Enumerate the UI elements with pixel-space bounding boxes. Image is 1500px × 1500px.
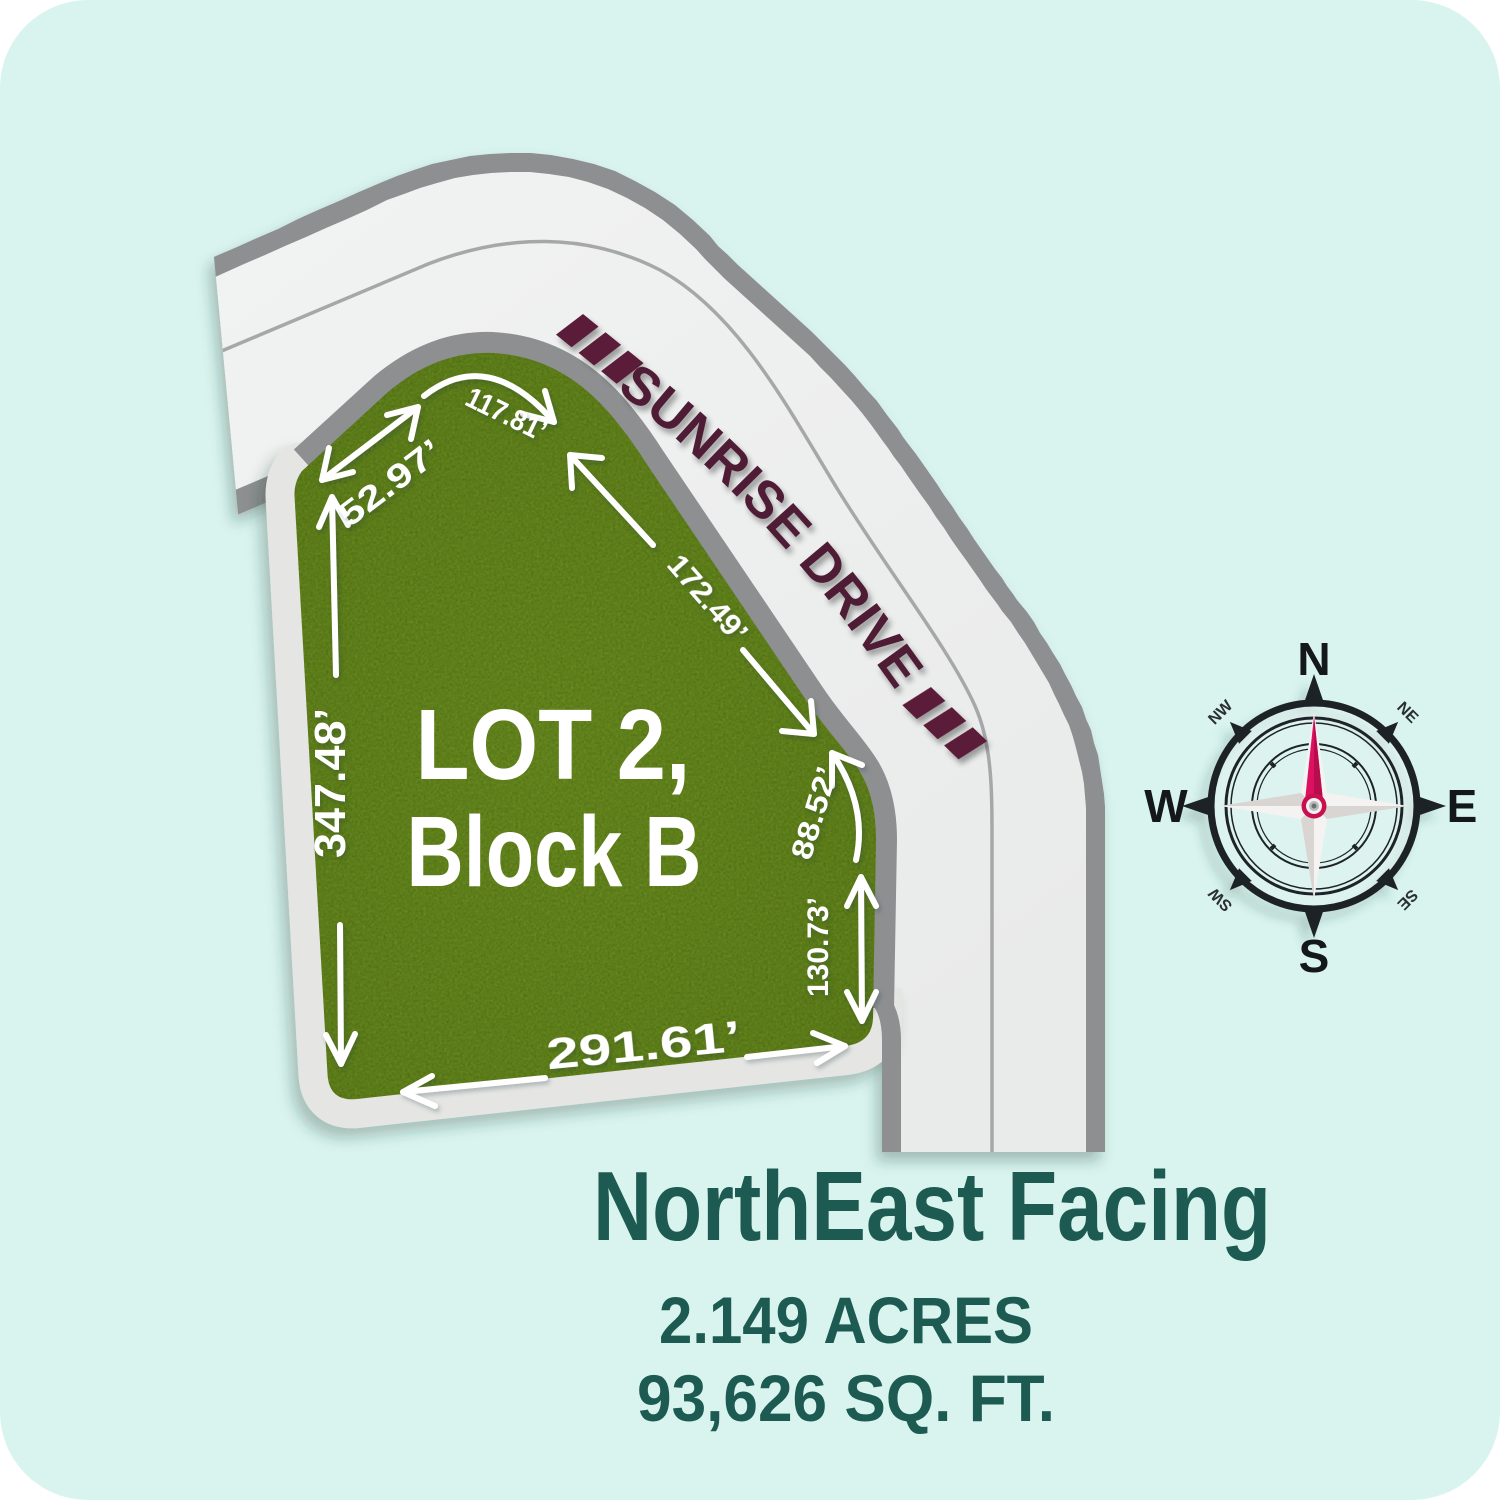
svg-text:N: N (1297, 633, 1330, 685)
svg-text:Block B: Block B (407, 796, 702, 908)
svg-text:130.73’: 130.73’ (802, 897, 835, 997)
svg-text:W: W (1144, 780, 1188, 832)
svg-text:E: E (1447, 780, 1478, 832)
svg-text:2.149 ACRES: 2.149 ACRES (659, 1283, 1033, 1357)
svg-text:347.48’: 347.48’ (306, 708, 355, 858)
svg-text:NorthEast Facing: NorthEast Facing (593, 1151, 1271, 1261)
svg-text:S: S (1299, 930, 1330, 982)
svg-text:LOT 2,: LOT 2, (416, 689, 691, 801)
svg-text:93,626 SQ. FT.: 93,626 SQ. FT. (637, 1361, 1055, 1435)
